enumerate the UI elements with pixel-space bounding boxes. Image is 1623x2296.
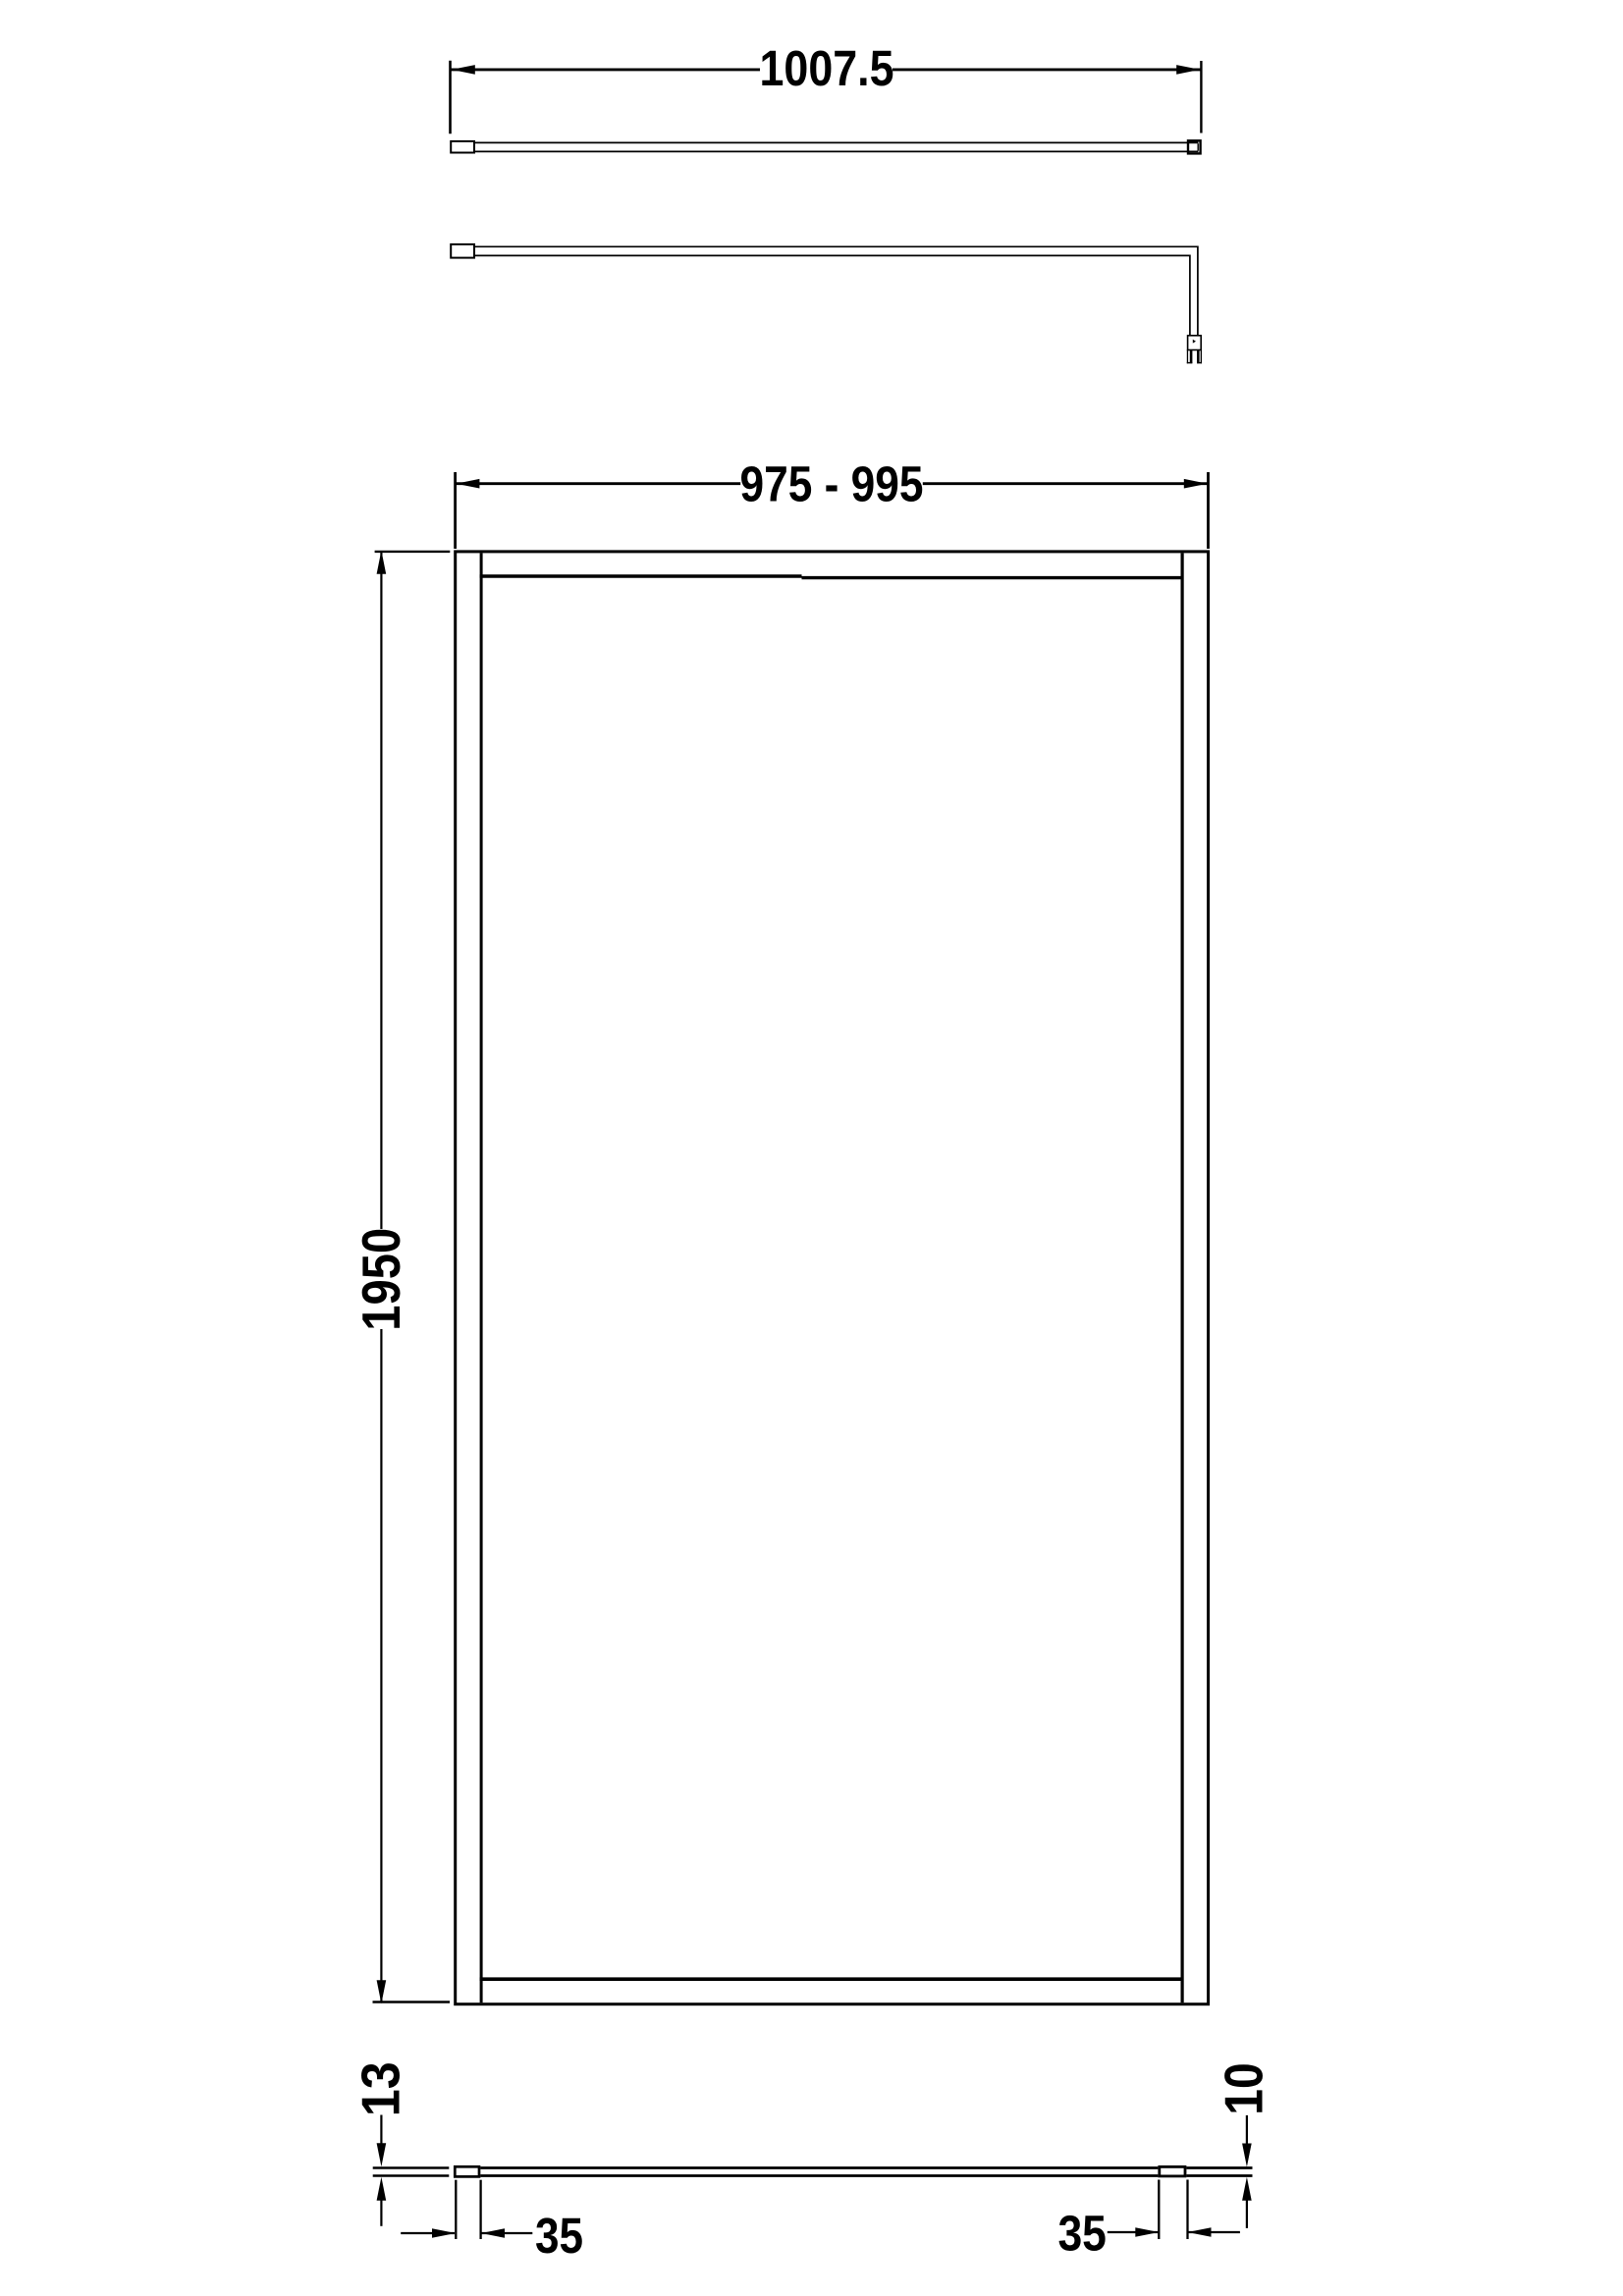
svg-text:35: 35 [535, 2208, 583, 2264]
svg-text:13: 13 [350, 2061, 410, 2116]
svg-text:35: 35 [1057, 2206, 1107, 2262]
svg-text:1950: 1950 [351, 1228, 411, 1331]
svg-text:975 - 995: 975 - 995 [740, 455, 924, 511]
svg-text:10: 10 [1213, 2062, 1273, 2115]
svg-text:1007.5: 1007.5 [760, 40, 894, 96]
